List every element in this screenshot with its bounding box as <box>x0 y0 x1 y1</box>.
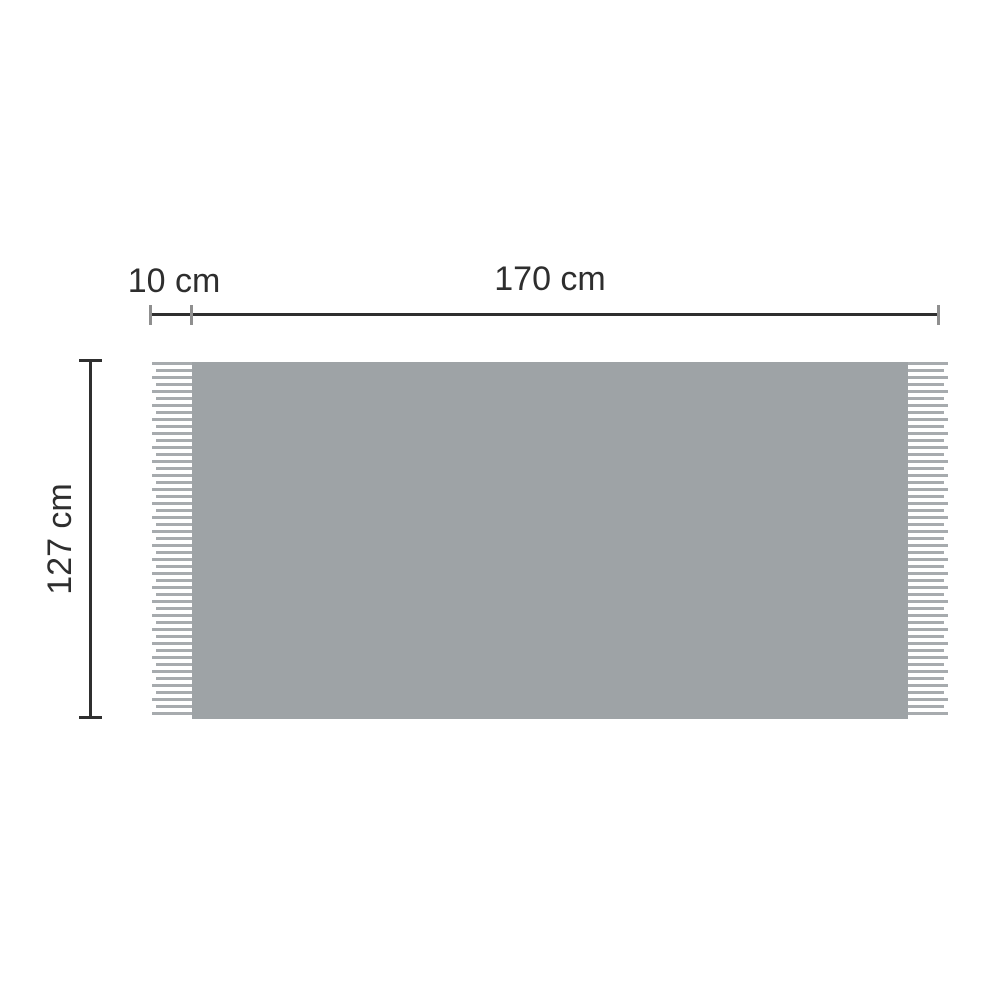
fringe-width-label: 10 cm <box>128 264 221 298</box>
horizontal-dimension-tick-left <box>149 305 152 325</box>
vertical-dimension-tick-bottom <box>79 716 102 719</box>
horizontal-dimension-tick-fringe <box>190 305 193 325</box>
horizontal-dimension-line <box>150 313 940 316</box>
vertical-dimension-line <box>89 360 92 719</box>
blanket-height-label: 127 cm <box>43 483 77 595</box>
blanket-rect <box>192 362 908 719</box>
blanket-fringe-right <box>908 362 948 719</box>
blanket-fringe-left <box>152 362 192 719</box>
vertical-dimension-tick-top <box>79 359 102 362</box>
blanket-dimension-diagram: 10 cm 170 cm 127 cm <box>0 0 990 990</box>
blanket-width-label: 170 cm <box>494 262 606 296</box>
horizontal-dimension-tick-right <box>937 305 940 325</box>
